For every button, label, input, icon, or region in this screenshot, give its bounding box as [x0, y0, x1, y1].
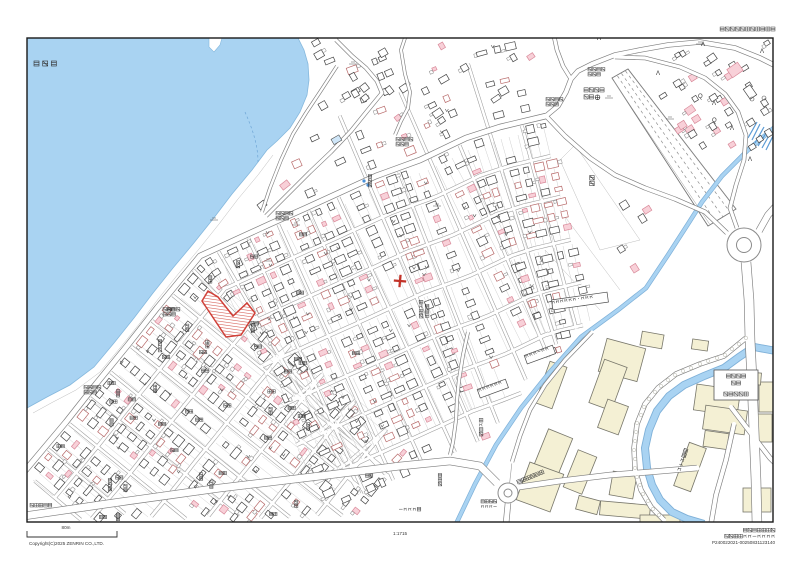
svg-text:Q: Q [698, 94, 703, 100]
svg-text:Λ: Λ [597, 36, 601, 42]
svg-text:Λ: Λ [760, 49, 764, 55]
svg-text:Λ: Λ [656, 71, 660, 77]
svg-text:Λ: Λ [701, 42, 705, 48]
svg-text:Copyright(C)2025 ZENRIN CO.,LT: Copyright(C)2025 ZENRIN CO.,LTD. [29, 541, 104, 546]
svg-text:Q: Q [712, 118, 717, 124]
svg-text:1:1715: 1:1715 [393, 531, 407, 536]
svg-text:Λ: Λ [730, 126, 734, 132]
svg-text:P240022021-00250831123140: P240022021-00250831123140 [712, 540, 775, 545]
svg-text:Λ: Λ [712, 101, 716, 107]
svg-text:80m: 80m [62, 525, 71, 530]
svg-text:Λ: Λ [748, 157, 752, 163]
